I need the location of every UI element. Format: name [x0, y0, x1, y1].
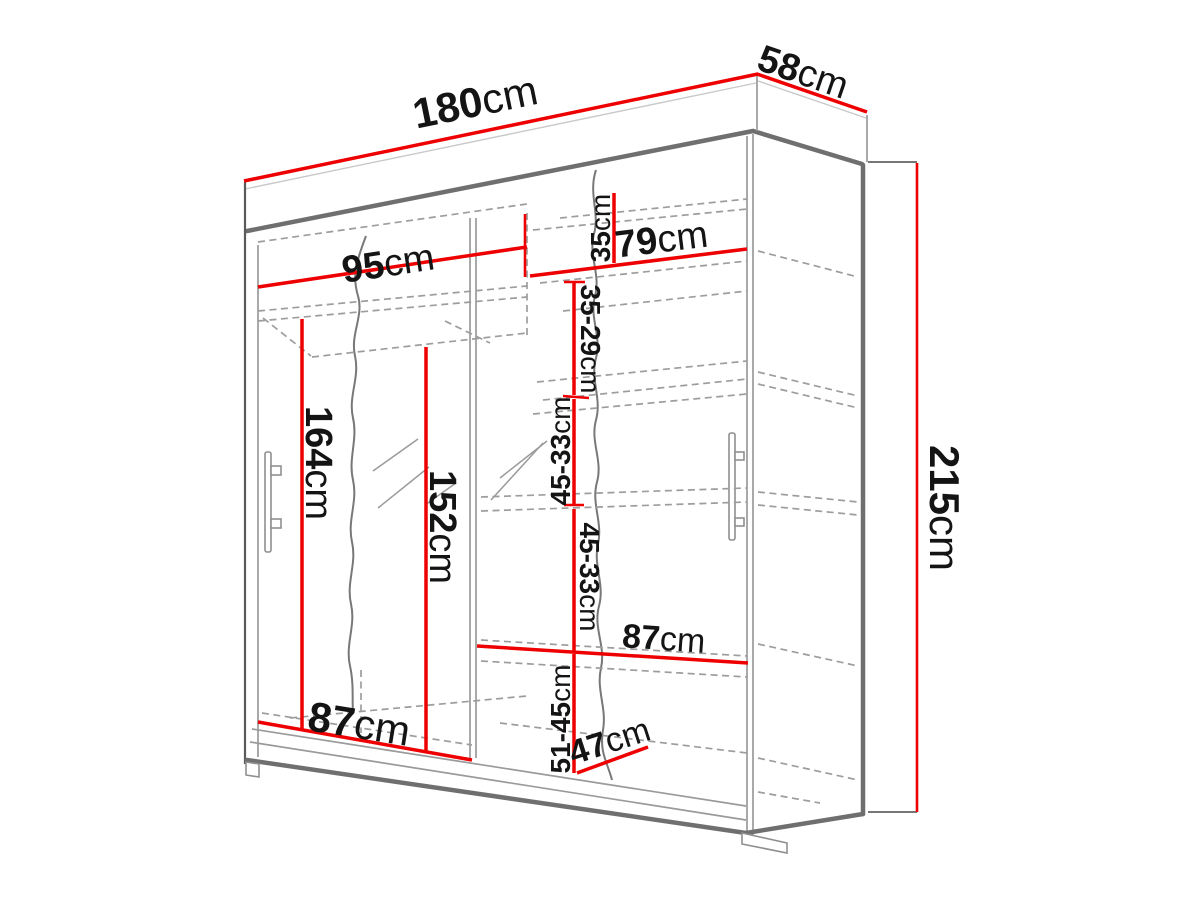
diagram-canvas: 180cm 58cm 215cm 95cm 79cm 35cm 35-29cm … [0, 0, 1200, 900]
right-handle-mount [735, 452, 744, 460]
right-handle-mount [735, 518, 744, 526]
left-foot [246, 762, 259, 777]
dim-label-right-shelf-width: 87cm [621, 617, 707, 661]
left-handle-mount [271, 466, 281, 475]
dim-label-left-hanging-height: 164cm [297, 406, 339, 520]
dim-label-middle-shelf-height-1: 45-33cm [545, 397, 576, 506]
right-door-handle [729, 433, 735, 540]
dim-label-total-height: 215cm [921, 445, 968, 571]
dim-label-upper-shelf-height: 35-29cm [575, 285, 606, 394]
left-handle-mount [271, 519, 281, 528]
dim-label-top-shelf-height: 35cm [585, 194, 616, 262]
left-door-handle [265, 452, 271, 552]
dim-label-left-inner-height: 152cm [421, 470, 463, 584]
dim-label-middle-shelf-height-2: 45-33cm [574, 523, 605, 632]
wardrobe-dimension-diagram: 180cm 58cm 215cm 95cm 79cm 35cm 35-29cm … [0, 0, 1200, 900]
